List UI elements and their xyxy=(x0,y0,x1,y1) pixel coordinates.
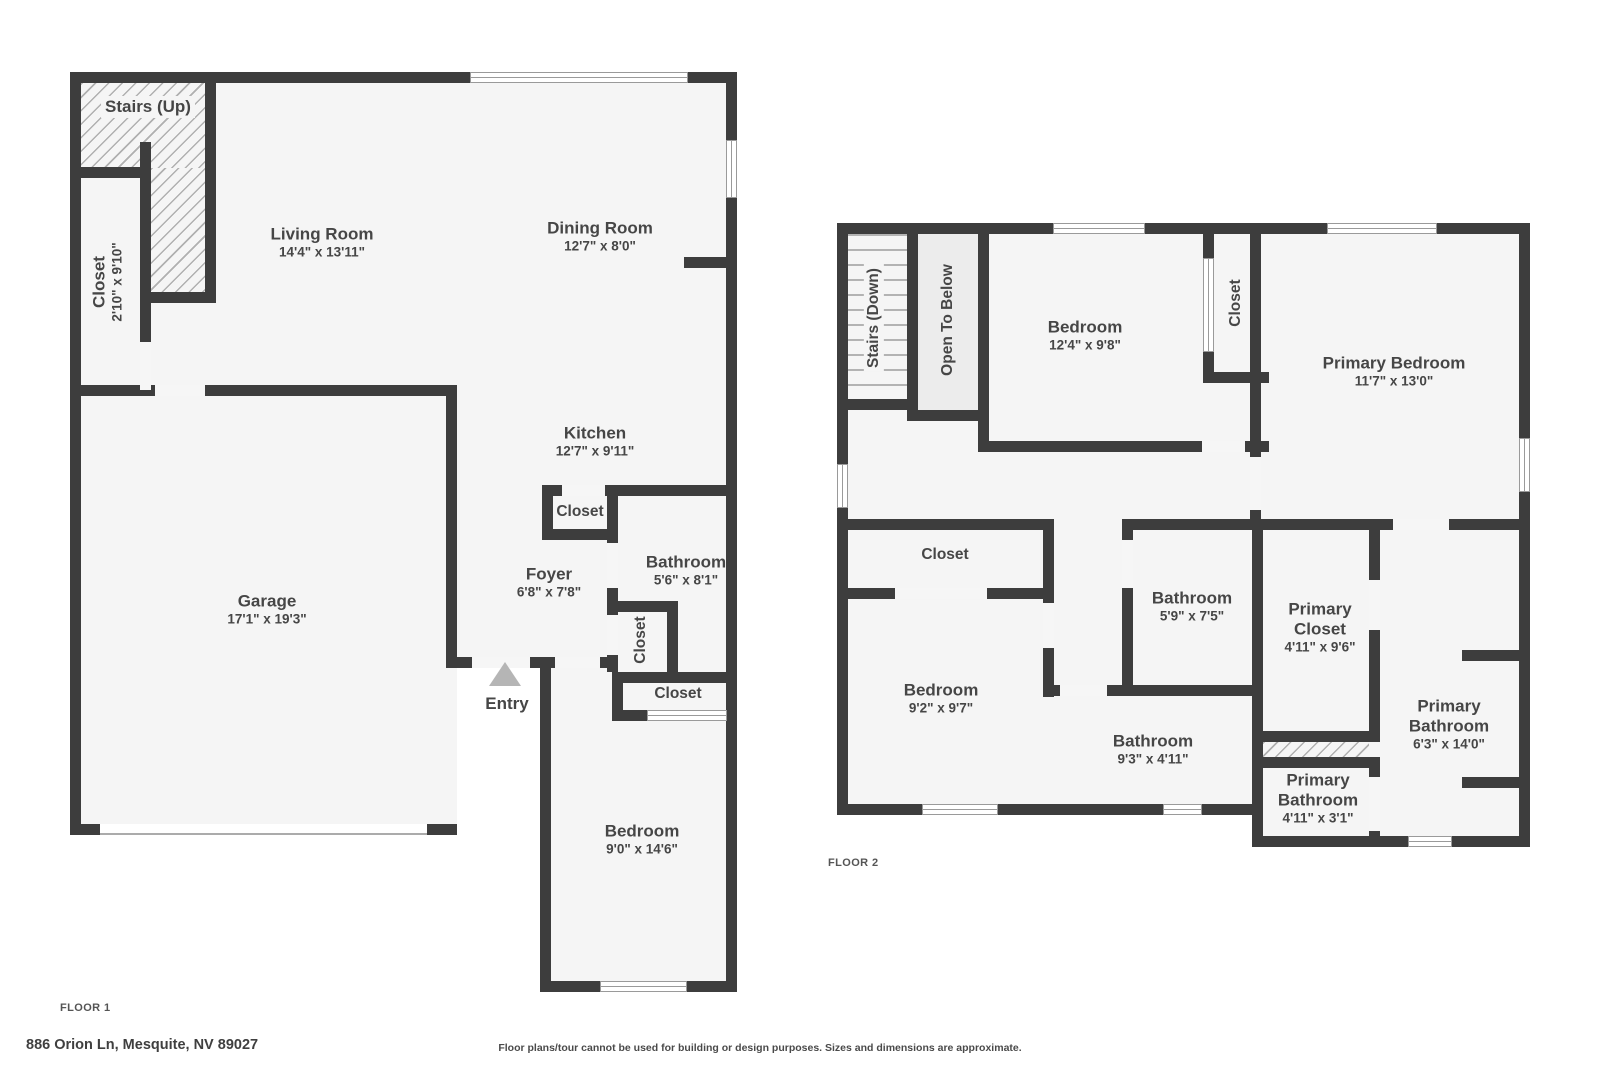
door-opening xyxy=(1122,540,1133,588)
half-wall-hatch xyxy=(1263,742,1369,757)
room-label-closet-mid: Closet xyxy=(1227,279,1245,326)
room-label-primary-bathroom-small: Primary Bathroom4'11" x 3'1" xyxy=(1272,771,1364,828)
door-opening xyxy=(1369,777,1380,831)
entry-label: Entry xyxy=(485,694,528,714)
room-label-bathroom: Bathroom5'6" x 8'1" xyxy=(646,553,726,590)
door-opening xyxy=(155,385,205,396)
window xyxy=(837,464,848,508)
room-label-bathroom-lower: Bathroom9'3" x 4'11" xyxy=(1113,732,1193,769)
window xyxy=(600,981,687,992)
room-label-kitchen: Kitchen12'7" x 9'11" xyxy=(556,424,635,461)
room-label-stairs-down: Stairs (Down) xyxy=(864,264,884,372)
window xyxy=(470,72,688,83)
address-text: 886 Orion Ln, Mesquite, NV 89027 xyxy=(26,1037,258,1053)
wall xyxy=(446,385,457,668)
wall xyxy=(540,657,551,992)
wall xyxy=(1252,519,1263,742)
door-opening xyxy=(607,543,618,588)
window xyxy=(1519,438,1530,492)
wall xyxy=(70,385,457,396)
wall xyxy=(667,601,678,672)
wall xyxy=(1122,519,1269,530)
entry-arrow-icon xyxy=(489,662,521,686)
wall xyxy=(1252,742,1263,804)
window xyxy=(1053,223,1145,234)
wall xyxy=(1519,223,1530,847)
window xyxy=(726,140,737,198)
wall xyxy=(1449,519,1530,530)
wall xyxy=(907,234,918,411)
door-opening xyxy=(1369,580,1380,630)
room-label-closet-left: Closet xyxy=(921,546,968,564)
sliding-door xyxy=(1203,258,1214,352)
wall xyxy=(205,83,216,303)
floor-plan-canvas: Stairs (Up) Closet2'10" x 9'10" Living R… xyxy=(0,0,1600,1067)
garage-door xyxy=(100,824,427,835)
wall xyxy=(145,292,216,303)
wall xyxy=(612,672,737,683)
wall xyxy=(1462,650,1530,661)
room-label-garage: Garage17'1" x 19'3" xyxy=(227,592,306,629)
floor2-caption: FLOOR 2 xyxy=(828,857,878,869)
room-label-foyer: Foyer6'8" x 7'8" xyxy=(517,565,581,602)
wall xyxy=(1252,804,1263,847)
window xyxy=(1163,804,1202,815)
wall xyxy=(1252,836,1530,847)
wall xyxy=(848,399,918,410)
room-label-primary-closet: Primary Closet4'11" x 9'6" xyxy=(1274,600,1366,657)
door-opening xyxy=(607,615,618,655)
door-opening xyxy=(140,342,151,390)
door-opening xyxy=(1060,685,1107,696)
room-label-primary-bathroom: Primary Bathroom6'3" x 14'0" xyxy=(1403,697,1495,754)
door-opening xyxy=(1250,457,1261,510)
door-opening xyxy=(562,485,605,496)
room-label-stairs-up: Stairs (Up) xyxy=(101,96,195,118)
room-label-bathroom-upper: Bathroom5'9" x 7'5" xyxy=(1152,589,1232,626)
room-label-pantry-closet: Closet xyxy=(556,503,603,521)
wall xyxy=(1252,731,1380,742)
wall xyxy=(907,410,989,421)
wall xyxy=(1252,757,1380,768)
wall xyxy=(1250,223,1261,457)
room-label-dining-room: Dining Room12'7" x 8'0" xyxy=(547,219,653,256)
stairs-hatch xyxy=(151,168,205,292)
room-label-closet-tall: Closet2'10" x 9'10" xyxy=(90,242,127,321)
door-opening xyxy=(1202,441,1245,452)
room-label-bedroom: Bedroom9'0" x 14'6" xyxy=(605,822,680,859)
door-opening xyxy=(555,657,600,668)
wall xyxy=(726,72,737,992)
wall xyxy=(1369,519,1380,742)
room-label-bedroom-top: Bedroom12'4" x 9'8" xyxy=(1048,318,1123,355)
wall xyxy=(1462,777,1530,788)
sliding-door xyxy=(647,710,727,721)
disclaimer-text: Floor plans/tour cannot be used for buil… xyxy=(498,1042,1021,1054)
room-label-bedroom-closet: Closet xyxy=(654,685,701,703)
window xyxy=(1408,836,1452,847)
door-opening xyxy=(1393,519,1449,530)
wall xyxy=(684,257,737,268)
room-label-primary-bedroom: Primary Bedroom11'7" x 13'0" xyxy=(1323,354,1466,391)
wall xyxy=(70,167,151,178)
door-opening xyxy=(895,588,987,599)
door-opening xyxy=(1043,603,1054,648)
window xyxy=(922,804,998,815)
room-label-hall-closet: Closet xyxy=(632,616,650,663)
floor1-caption: FLOOR 1 xyxy=(60,1002,110,1014)
room-label-bedroom-left: Bedroom9'2" x 9'7" xyxy=(904,681,979,718)
wall xyxy=(70,72,81,835)
room-label-open-to-below: Open To Below xyxy=(939,264,957,376)
wall xyxy=(837,519,1054,530)
window xyxy=(1327,223,1437,234)
room-label-living-room: Living Room14'4" x 13'11" xyxy=(271,225,374,262)
